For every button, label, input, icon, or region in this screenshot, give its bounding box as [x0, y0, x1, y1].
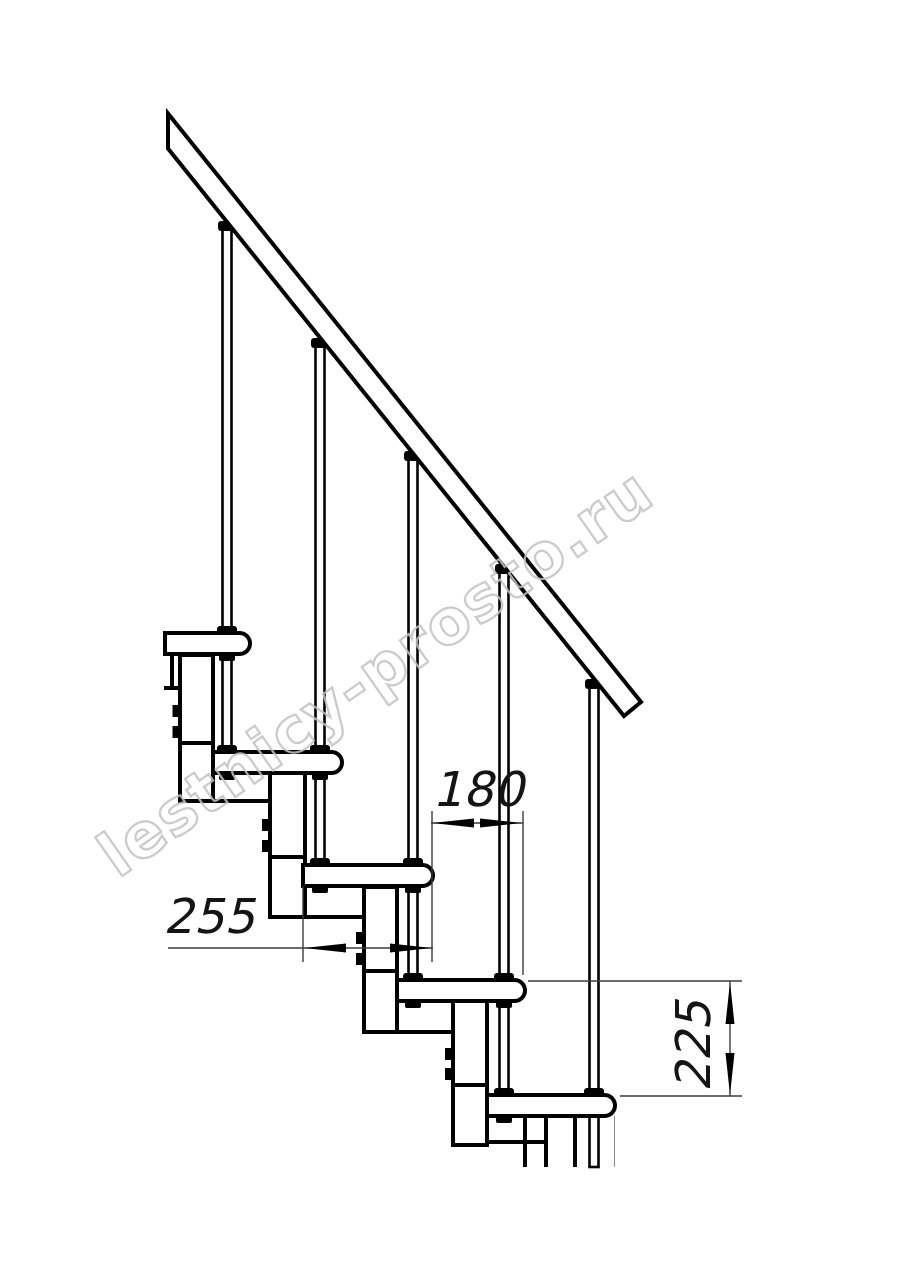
bolt-icon	[356, 953, 365, 965]
tread-collar	[584, 1088, 604, 1096]
arrowhead-left-icon	[432, 819, 474, 828]
tread-nut	[405, 886, 421, 893]
tread-nut	[496, 1116, 512, 1123]
bolt-icon	[173, 726, 182, 738]
tread	[487, 1095, 615, 1116]
support-module	[445, 1000, 546, 1145]
arrowhead-left-icon	[304, 944, 346, 953]
bolt-icon	[173, 705, 182, 717]
tread-foot	[494, 1088, 514, 1096]
dimension-rise: 225	[528, 981, 742, 1167]
tread-nut	[496, 1001, 512, 1008]
bolt-icon	[445, 1048, 454, 1060]
support-module	[262, 773, 364, 917]
arrowhead-up-icon	[726, 982, 735, 1024]
tread-collar	[217, 626, 237, 634]
tread-nut	[405, 1001, 421, 1008]
cropped-structure-left	[164, 655, 180, 688]
arrowhead-down-icon	[726, 1053, 735, 1095]
tread-collar	[494, 973, 514, 981]
tread	[165, 633, 250, 654]
dimension-going: 180	[429, 763, 533, 975]
baluster	[223, 228, 232, 753]
baluster	[409, 458, 418, 981]
bolt-icon	[262, 819, 271, 831]
tread-collar	[403, 858, 423, 866]
baluster	[316, 345, 325, 866]
dimension-label-tread-depth: 255	[160, 890, 264, 945]
bolt-icon	[356, 932, 365, 944]
staircase-drawing: 255 180 225 lestnicy-prosto.ru	[0, 0, 914, 1280]
tread-foot	[310, 858, 330, 866]
tread-foot	[403, 973, 423, 981]
baluster	[500, 571, 509, 1096]
support-module	[356, 887, 453, 1032]
bolt-icon	[445, 1068, 454, 1080]
tread	[303, 865, 433, 886]
tread-nut	[312, 886, 328, 893]
tread-nut	[312, 773, 328, 780]
tread-nut	[219, 654, 235, 661]
bolt-icon	[262, 840, 271, 852]
dimension-label-going: 180	[429, 763, 533, 818]
tread	[397, 980, 525, 1001]
dimension-label-rise: 225	[667, 990, 722, 1094]
